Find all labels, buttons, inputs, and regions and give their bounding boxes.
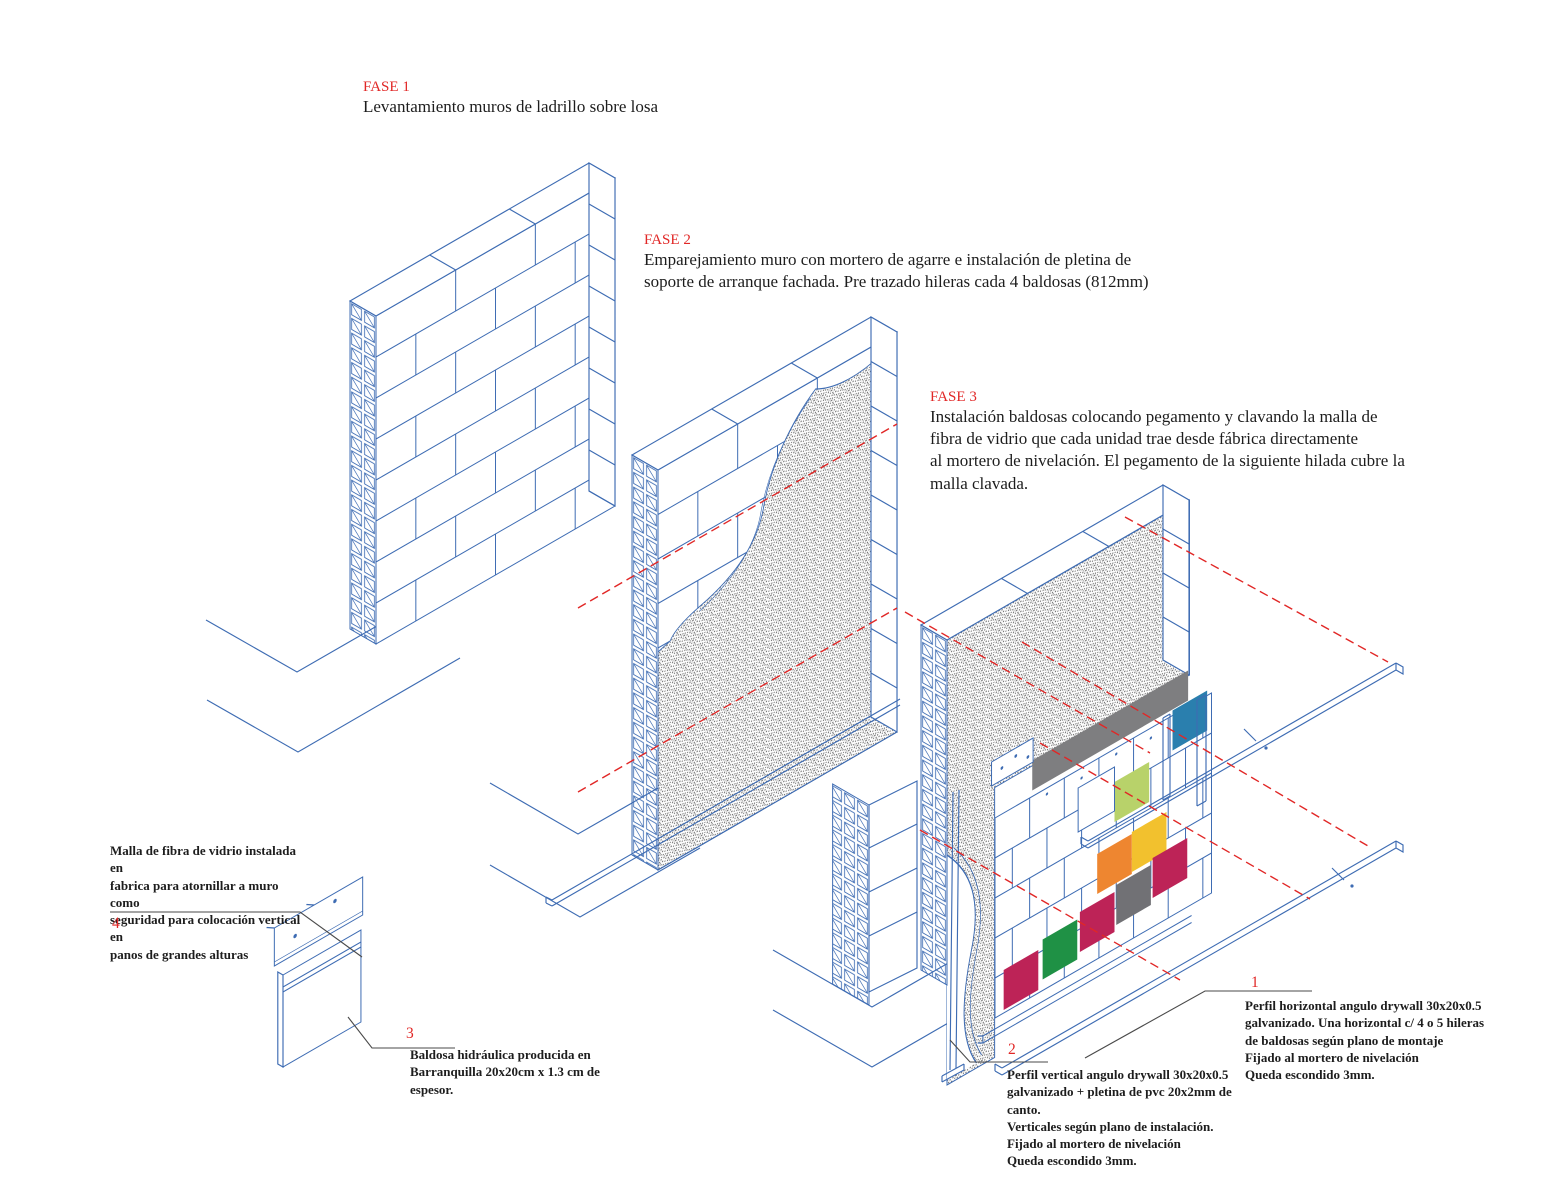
callout-3-text: Baldosa hidráulica producida en Barranqu… [410, 1046, 640, 1098]
callout-2-text: Perfil vertical angulo drywall 30x20x0.5… [1007, 1066, 1267, 1170]
hollow-brick-end-cells [632, 455, 658, 870]
fase1-heading: FASE 1 Levantamiento muros de ladrillo s… [363, 79, 658, 118]
callout-3-number: 3 [406, 1026, 414, 1042]
fase3-text: Instalación baldosas colocando pegamento… [930, 406, 1405, 494]
tile-edge-thickness [278, 972, 283, 1067]
rail-tick [1244, 729, 1256, 741]
callout-2-number: 2 [1008, 1042, 1016, 1058]
fase3-heading: FASE 3 Instalación baldosas colocando pe… [930, 389, 1405, 495]
hollow-brick-end-cells [350, 301, 376, 644]
leader-callout-3 [348, 1017, 455, 1048]
fase1-label: FASE 1 [363, 79, 658, 96]
fase2-text: Emparejamiento muro con mortero de agarr… [644, 249, 1149, 293]
fase2-label: FASE 2 [644, 232, 1149, 249]
callout-1-text: Perfil horizontal angulo drywall 30x20x0… [1245, 997, 1495, 1083]
callout-1-number: 1 [1251, 975, 1259, 991]
callout-4-text: Malla de fibra de vidrio instalada en fa… [110, 842, 310, 963]
rail-screw-dot [1350, 884, 1353, 887]
construction-phases-diagram: FASE 1 Levantamiento muros de ladrillo s… [0, 0, 1547, 1200]
callout-4-number: 4 [112, 916, 120, 932]
fase3-label: FASE 3 [930, 389, 1405, 406]
fase1-text: Levantamiento muros de ladrillo sobre lo… [363, 96, 658, 118]
corner-return-face [869, 781, 917, 992]
rail-tick [1332, 868, 1344, 880]
hollow-brick-end-cells [921, 625, 947, 985]
wall-right-end [871, 317, 897, 732]
rail-screw-dot [1264, 746, 1267, 749]
hollow-brick-end-cells [833, 784, 869, 1005]
wall-fase1 [206, 163, 615, 752]
fase2-heading: FASE 2 Emparejamiento muro con mortero d… [644, 232, 1149, 293]
